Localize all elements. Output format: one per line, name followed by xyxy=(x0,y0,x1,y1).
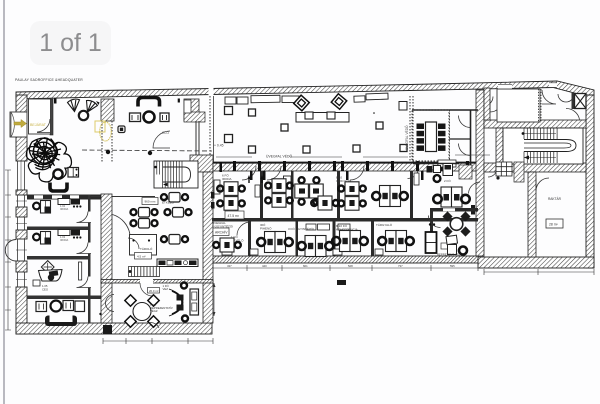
svg-text:2 FŐ: 2 FŐ xyxy=(444,178,451,183)
svg-text:PIHENŐ: PIHENŐ xyxy=(260,226,272,231)
svg-text:528: 528 xyxy=(348,264,353,268)
svg-text:REPREZENT. IRO: REPREZENT. IRO xyxy=(437,253,461,257)
svg-text:3 FŐ ÜGYINTÉZŐI: 3 FŐ ÜGYINTÉZŐI xyxy=(288,226,314,231)
svg-text:47.5 m²: 47.5 m² xyxy=(228,214,240,218)
svg-text:TÁROLÓ: TÁROLÓ xyxy=(140,246,153,251)
svg-text:VEZ: VEZ xyxy=(163,287,169,291)
svg-text:440: 440 xyxy=(262,264,267,268)
svg-text:KONFERENCIA: KONFERENCIA xyxy=(336,228,358,232)
svg-text:IRODA: IRODA xyxy=(60,238,68,242)
svg-text:TÁRGYALÓ: TÁRGYALÓ xyxy=(376,222,393,227)
svg-text:737: 737 xyxy=(398,264,403,268)
svg-text:20.0 m²: 20.0 m² xyxy=(149,289,159,293)
svg-text:VÉGZ: VÉGZ xyxy=(150,308,158,313)
svg-text:ÜVEGFAL VÉDŐ: ÜVEGFAL VÉDŐ xyxy=(266,154,292,159)
svg-text:IROD KOM: IROD KOM xyxy=(336,179,352,183)
svg-text:IRODA: IRODA xyxy=(222,177,232,181)
svg-text:4.5 m²: 4.5 m² xyxy=(137,255,146,259)
svg-text:595: 595 xyxy=(450,264,455,268)
svg-text:960 mm: 960 mm xyxy=(145,200,156,204)
svg-text:601: 601 xyxy=(303,264,308,268)
svg-text:ÜVEGFAL VÉDŐ: ÜVEGFAL VÉDŐ xyxy=(404,125,409,150)
svg-text:RAKTÁR: RAKTÁR xyxy=(548,197,562,201)
svg-text:+ 0.45: + 0.45 xyxy=(214,144,224,148)
svg-text:ARCHÍV: ARCHÍV xyxy=(215,231,228,235)
svg-text:28 m²: 28 m² xyxy=(549,223,559,227)
svg-text:IRODA: IRODA xyxy=(60,207,68,211)
svg-text:437: 437 xyxy=(227,264,232,268)
svg-text:CEO: CEO xyxy=(42,288,49,292)
svg-text:BEJÁRAT: BEJÁRAT xyxy=(30,123,47,127)
svg-text:7-ÜGYINTÉZŐI: 7-ÜGYINTÉZŐI xyxy=(212,224,233,229)
